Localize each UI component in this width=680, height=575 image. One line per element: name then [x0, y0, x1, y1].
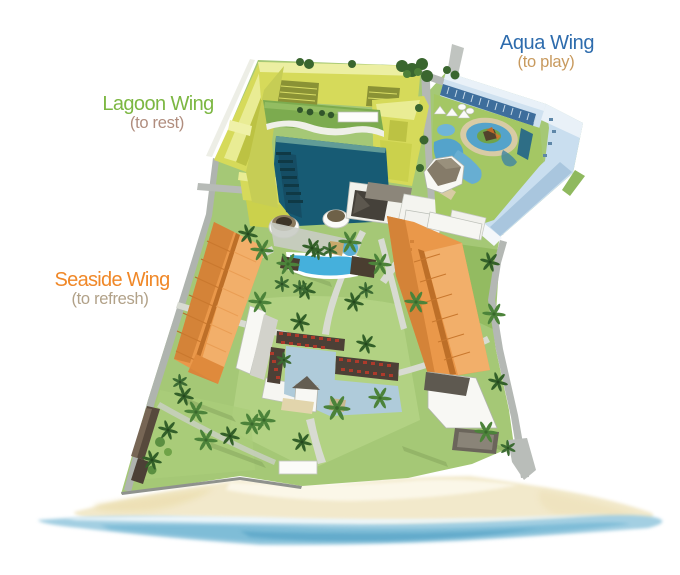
svg-text:(to rest): (to rest) [130, 114, 184, 132]
svg-text:(to play): (to play) [518, 53, 575, 71]
svg-text:Seaside Wing: Seaside Wing [55, 269, 170, 291]
svg-text:Lagoon Wing: Lagoon Wing [102, 93, 213, 115]
svg-text:(to refresh): (to refresh) [71, 290, 148, 308]
svg-text:Aqua Wing: Aqua Wing [500, 32, 594, 54]
